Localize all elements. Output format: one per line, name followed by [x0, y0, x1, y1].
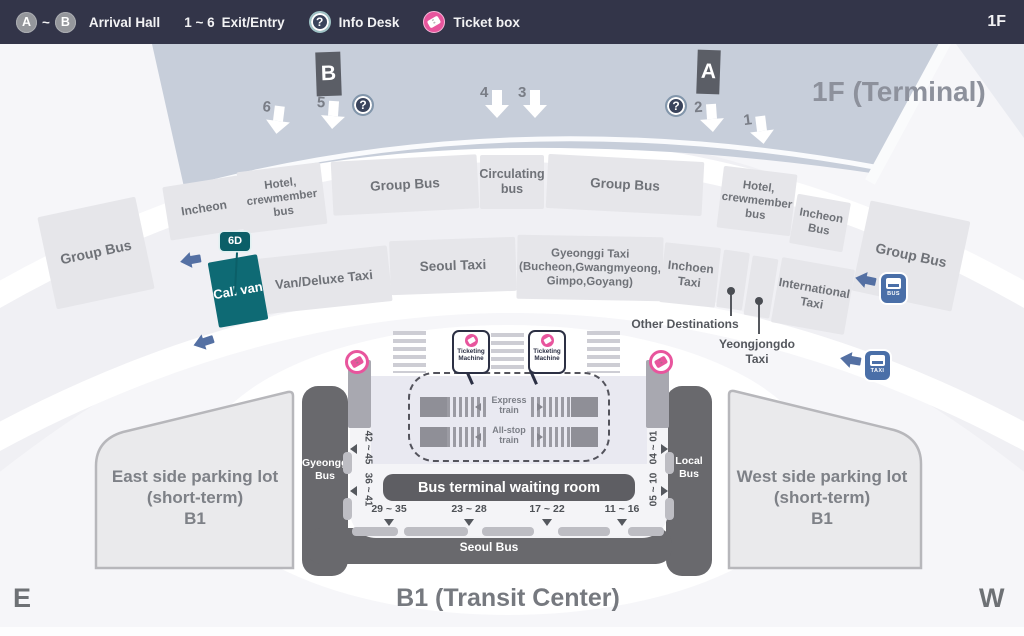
- airport-map: A ~ B Arrival Hall 1 ~ 6 Exit/Entry ? In…: [0, 0, 1024, 636]
- legend-tilde: ~: [42, 15, 50, 30]
- east-parking-line3: B1: [96, 508, 294, 529]
- platform-bar: [420, 427, 447, 447]
- platform-tab: [482, 527, 534, 536]
- ticket-glyph: [654, 356, 668, 369]
- ticket-glyph: [350, 356, 364, 369]
- exit-number-5: 5: [316, 94, 326, 112]
- east-parking-label: East side parking lot (short-term) B1: [96, 466, 294, 529]
- info-desk-icon: ?: [309, 11, 331, 33]
- zone-international-taxi: International Taxi: [771, 257, 855, 335]
- floor-indicator: 1F: [987, 13, 1006, 31]
- bus-stops-36-41: 36 ~ 41: [363, 468, 374, 512]
- arrow-head: [750, 130, 775, 146]
- gate-a-marker: A: [696, 50, 721, 95]
- ticket-box-icon: [423, 11, 445, 33]
- legend-exit-range: 1 ~ 6: [184, 15, 214, 30]
- zone-seoul-taxi: Seoul Taxi: [389, 237, 517, 295]
- arrow-stem: [492, 90, 502, 105]
- crosswalk-west: [393, 331, 426, 373]
- platform-tab: [352, 527, 398, 536]
- right-mini-arrow: [537, 403, 543, 411]
- escalator-stripes: [447, 397, 487, 417]
- seoul-bus-label: Seoul Bus: [306, 540, 672, 555]
- question-glyph: ?: [672, 99, 679, 113]
- all-stop-train-label: All-stop train: [483, 425, 535, 446]
- west-parking-line2: (short-term): [723, 487, 921, 508]
- ticket-glyph: [427, 16, 441, 29]
- stop-marker-arrow: [661, 486, 668, 496]
- bottom-strip: [0, 627, 1024, 636]
- bus-glyph: [886, 278, 901, 289]
- gyeonggi-taxi-line3: Gimpo,Goyang): [547, 274, 633, 290]
- right-mini-arrow: [537, 433, 543, 441]
- transit-center-title: B1 (Transit Center): [384, 584, 632, 613]
- platform-tab: [343, 452, 352, 474]
- stop-marker-arrow: [661, 444, 668, 454]
- left-mini-arrow: [475, 403, 481, 411]
- arrow-stem: [328, 101, 339, 117]
- east-parking-line2: (short-term): [96, 487, 294, 508]
- arrow-stem: [189, 254, 201, 264]
- stop-marker-arrow: [617, 519, 627, 526]
- legend-bar: A ~ B Arrival Hall 1 ~ 6 Exit/Entry ? In…: [0, 0, 1024, 44]
- arrow-head: [523, 105, 547, 118]
- bus-stops-05-10: 05 ~ 10: [649, 468, 660, 512]
- exit-arrow-3: 3: [523, 90, 547, 120]
- zone-circulating-bus: Circulating bus: [480, 155, 544, 209]
- ticketing-machine-label: Ticketing Machine: [454, 348, 488, 362]
- info-desk-icon-east: ?: [665, 95, 687, 117]
- arrow-stem: [864, 276, 876, 286]
- escalator-stripes: [447, 427, 487, 447]
- crosswalk-east: [587, 331, 620, 373]
- exit-number-3: 3: [518, 84, 526, 101]
- platform-tab: [665, 498, 674, 520]
- platform-bar: [571, 427, 598, 447]
- exit-arrow-4: 4: [485, 90, 509, 120]
- ticket-icon: [465, 334, 478, 347]
- zone-incheon-bus: Incheon Bus: [789, 194, 851, 253]
- east-direction-label: E: [13, 583, 31, 614]
- stop-marker-arrow: [464, 519, 474, 526]
- legend-arrival-hall: Arrival Hall: [89, 15, 160, 30]
- stop-marker-arrow: [350, 444, 357, 454]
- ticket-box-icon-west: [345, 350, 369, 374]
- arrow-stem: [755, 116, 767, 132]
- other-destinations-pin: [730, 293, 732, 316]
- exit-number-4: 4: [480, 84, 488, 101]
- bus-stops-11-16: 11 ~ 16: [592, 503, 652, 515]
- west-parking-line3: B1: [723, 508, 921, 529]
- ticket-box-icon-east: [649, 350, 673, 374]
- platform-tab: [343, 498, 352, 520]
- zone-hotel-crew-west: Hotel, crewmember bus: [237, 162, 328, 234]
- taxi-icon-label: TAXI: [871, 368, 885, 374]
- arrow-stem: [849, 356, 861, 366]
- zone-group-bus-east: Group Bus: [546, 154, 705, 216]
- bus-stops-04-01: 04 ~ 01: [649, 426, 660, 470]
- legend-ticket-box: Ticket box: [453, 15, 520, 30]
- exit-arrow-1: 1: [748, 115, 775, 148]
- arrow-stem: [202, 335, 215, 346]
- ticketing-machine-sign-west: Ticketing Machine: [452, 330, 490, 374]
- zone-group-bus-west: Group Bus: [331, 154, 480, 216]
- west-parking-line1: West side parking lot: [723, 466, 921, 487]
- east-parking-line1: East side parking lot: [96, 466, 294, 487]
- arrow-stem: [530, 90, 540, 105]
- exit-arrow-6: 6: [264, 105, 291, 138]
- stop-marker-arrow: [384, 519, 394, 526]
- taxi-glyph: [870, 355, 885, 366]
- terminal-title: 1F (Terminal): [812, 76, 986, 108]
- exit-number-6: 6: [262, 98, 272, 116]
- other-destinations-label: Other Destinations: [626, 317, 744, 331]
- arrow-head: [320, 115, 345, 130]
- stop-marker-arrow: [350, 486, 357, 496]
- taxi-stand-icon: TAXI: [865, 351, 890, 380]
- exit-number-2: 2: [694, 99, 704, 117]
- platform-bar: [571, 397, 598, 417]
- zone-gyeonggi-taxi: Gyeonggi Taxi (Bucheon,Gwangmyeong, Gimp…: [516, 235, 663, 302]
- gyeonggi-taxi-line1: Gyeonggi Taxi: [551, 246, 630, 261]
- platform-tab: [628, 527, 664, 536]
- legend-exit-entry: Exit/Entry: [222, 15, 285, 30]
- gate-b-marker: B: [315, 52, 342, 97]
- crosswalk-center: [491, 333, 524, 373]
- bus-stops-42-45: 42 ~ 45: [363, 426, 374, 470]
- arrival-hall-b-badge: B: [55, 12, 76, 33]
- info-desk-icon-west: ?: [352, 94, 374, 116]
- arrow-stem: [706, 104, 717, 120]
- arrow-head: [265, 120, 290, 136]
- waiting-room-bar: Bus terminal waiting room: [383, 474, 635, 501]
- west-direction-label: W: [979, 583, 1004, 614]
- platform-tab: [665, 452, 674, 474]
- question-glyph: ?: [359, 98, 366, 112]
- exit-arrow-2: 2: [699, 103, 725, 135]
- arrow-stem: [273, 106, 285, 122]
- express-train-label: Express train: [483, 395, 535, 416]
- gyeonggi-bus-label: Gyeonggi Bus: [302, 457, 348, 483]
- bus-icon-label: BUS: [887, 291, 900, 297]
- zone-hotel-crew-east: Hotel, crewmember bus: [716, 166, 797, 237]
- platform-tab: [404, 527, 468, 536]
- yeongjongdo-pin: [758, 303, 760, 334]
- stop-6d-badge: 6D: [220, 232, 250, 251]
- arrow-head: [485, 105, 509, 118]
- left-mini-arrow: [475, 433, 481, 441]
- ticket-icon: [541, 334, 554, 347]
- train-platform-area: [408, 372, 610, 462]
- gyeonggi-taxi-line2: (Bucheon,Gwangmyeong,: [519, 260, 661, 276]
- ticketing-machine-sign-east: Ticketing Machine: [528, 330, 566, 374]
- platform-bar: [420, 397, 447, 417]
- platform-tab: [558, 527, 610, 536]
- legend-info-desk: Info Desk: [339, 15, 400, 30]
- question-glyph: ?: [316, 15, 323, 29]
- zone-inchoen-taxi: Inchoen Taxi: [659, 242, 721, 308]
- bus-stops-23-28: 23 ~ 28: [439, 503, 499, 515]
- arrival-hall-a-badge: A: [16, 12, 37, 33]
- stop-marker-arrow: [542, 519, 552, 526]
- bus-stop-icon: BUS: [881, 274, 906, 303]
- exit-arrow-5: 5: [320, 100, 346, 132]
- west-parking-label: West side parking lot (short-term) B1: [723, 466, 921, 529]
- ticketing-machine-label: Ticketing Machine: [530, 348, 564, 362]
- arrow-head: [700, 118, 725, 133]
- yeongjongdo-taxi-label: Yeongjongdo Taxi: [710, 337, 804, 367]
- bus-stops-17-22: 17 ~ 22: [517, 503, 577, 515]
